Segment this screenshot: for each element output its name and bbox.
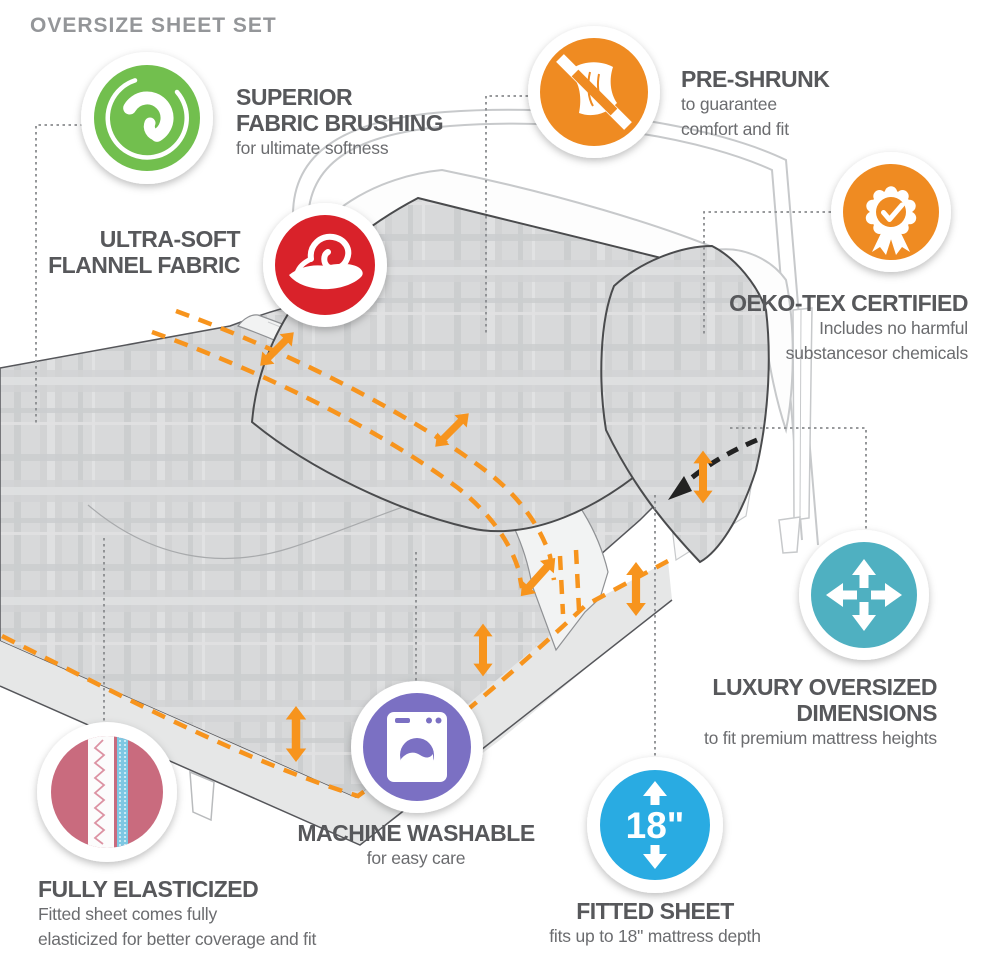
feature-pre-shrunk: PRE-SHRUNK to guarantee comfort and fit xyxy=(681,66,829,142)
feature-subtext: to fit premium mattress heights xyxy=(617,726,937,751)
feature-heading-line: FABRIC BRUSHING xyxy=(236,110,443,136)
feature-heading-line: FITTED SHEET xyxy=(495,898,815,924)
ultra-soft-badge xyxy=(263,203,387,327)
feature-oeko-tex-certified: OEKO-TEX CERTIFIED Includes no harmful s… xyxy=(648,290,968,366)
pre-shrunk-badge xyxy=(528,26,660,158)
elastic-closeup-icon xyxy=(51,736,163,848)
oeko-tex-badge xyxy=(831,152,951,272)
feature-subtext: elasticized for better coverage and fit xyxy=(38,927,316,952)
feature-heading-line: PRE-SHRUNK xyxy=(681,66,829,92)
feature-superior-fabric-brushing: SUPERIOR FABRIC BRUSHING for ultimate so… xyxy=(236,84,443,161)
feature-ultra-soft-flannel: ULTRA-SOFT FLANNEL FABRIC xyxy=(0,226,240,278)
washing-machine-icon xyxy=(387,712,447,782)
bed-leg-rear xyxy=(779,517,800,553)
fully-elasticized-badge xyxy=(37,722,177,862)
feature-heading-line: SUPERIOR xyxy=(236,84,443,110)
feature-heading-line: MACHINE WASHABLE xyxy=(256,820,576,846)
machine-washable-badge xyxy=(351,681,483,813)
feature-fully-elasticized: FULLY ELASTICIZED Fitted sheet comes ful… xyxy=(38,876,316,952)
luxury-dimensions-badge xyxy=(799,530,929,660)
feature-machine-washable: MACHINE WASHABLE for easy care xyxy=(256,820,576,871)
feature-subtext: Fitted sheet comes fully xyxy=(38,902,316,927)
feature-heading-line: FLANNEL FABRIC xyxy=(0,252,240,278)
feature-subtext: substancesor chemicals xyxy=(648,341,968,366)
feature-heading-line: FULLY ELASTICIZED xyxy=(38,876,316,902)
infographic-oversize-sheet-set: 18" OVERSIZE SHEET SET SUPERIOR FABRIC B… xyxy=(0,0,990,972)
feature-fitted-sheet: FITTED SHEET fits up to 18" mattress dep… xyxy=(495,898,815,949)
feature-luxury-oversized-dimensions: LUXURY OVERSIZED DIMENSIONS to fit premi… xyxy=(617,674,937,751)
feature-subtext: comfort and fit xyxy=(681,117,829,142)
feature-subtext: to guarantee xyxy=(681,92,829,117)
feature-heading-line: LUXURY OVERSIZED xyxy=(617,674,937,700)
feature-heading-line: DIMENSIONS xyxy=(617,700,937,726)
feature-subtext: for ultimate softness xyxy=(236,136,443,161)
feature-subtext: fits up to 18" mattress depth xyxy=(495,924,815,949)
feature-subtext: for easy care xyxy=(256,846,576,871)
badge-18-label: 18" xyxy=(626,805,685,846)
fabric-brushing-badge xyxy=(81,52,213,184)
page-title: OVERSIZE SHEET SET xyxy=(30,14,277,38)
feature-heading-line: OEKO-TEX CERTIFIED xyxy=(648,290,968,316)
feature-subtext: Includes no harmful xyxy=(648,316,968,341)
feature-heading-line: ULTRA-SOFT xyxy=(0,226,240,252)
fitted-sheet-badge: 18" xyxy=(587,757,723,893)
